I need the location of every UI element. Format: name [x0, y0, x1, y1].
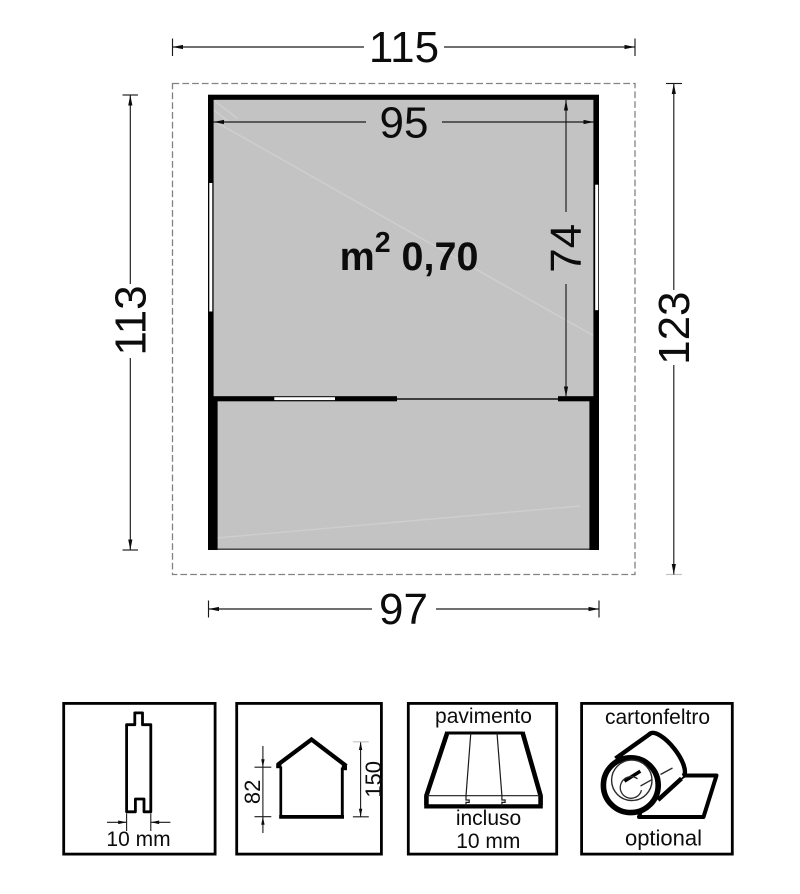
svg-text:m2 0,70: m2 0,70: [340, 227, 479, 279]
svg-text:incluso: incluso: [456, 807, 521, 830]
svg-text:74: 74: [542, 224, 591, 273]
svg-text:150: 150: [361, 761, 386, 798]
svg-text:82: 82: [240, 780, 265, 804]
svg-text:113: 113: [106, 285, 155, 355]
svg-text:pavimento: pavimento: [435, 705, 532, 728]
svg-text:10 mm: 10 mm: [456, 830, 520, 853]
svg-text:95: 95: [380, 99, 429, 148]
svg-text:123: 123: [650, 291, 699, 364]
svg-text:97: 97: [379, 585, 428, 634]
svg-text:optional: optional: [625, 826, 702, 851]
svg-text:10 mm: 10 mm: [106, 828, 170, 851]
svg-text:cartonfeltro: cartonfeltro: [605, 706, 710, 729]
svg-text:115: 115: [369, 23, 439, 72]
